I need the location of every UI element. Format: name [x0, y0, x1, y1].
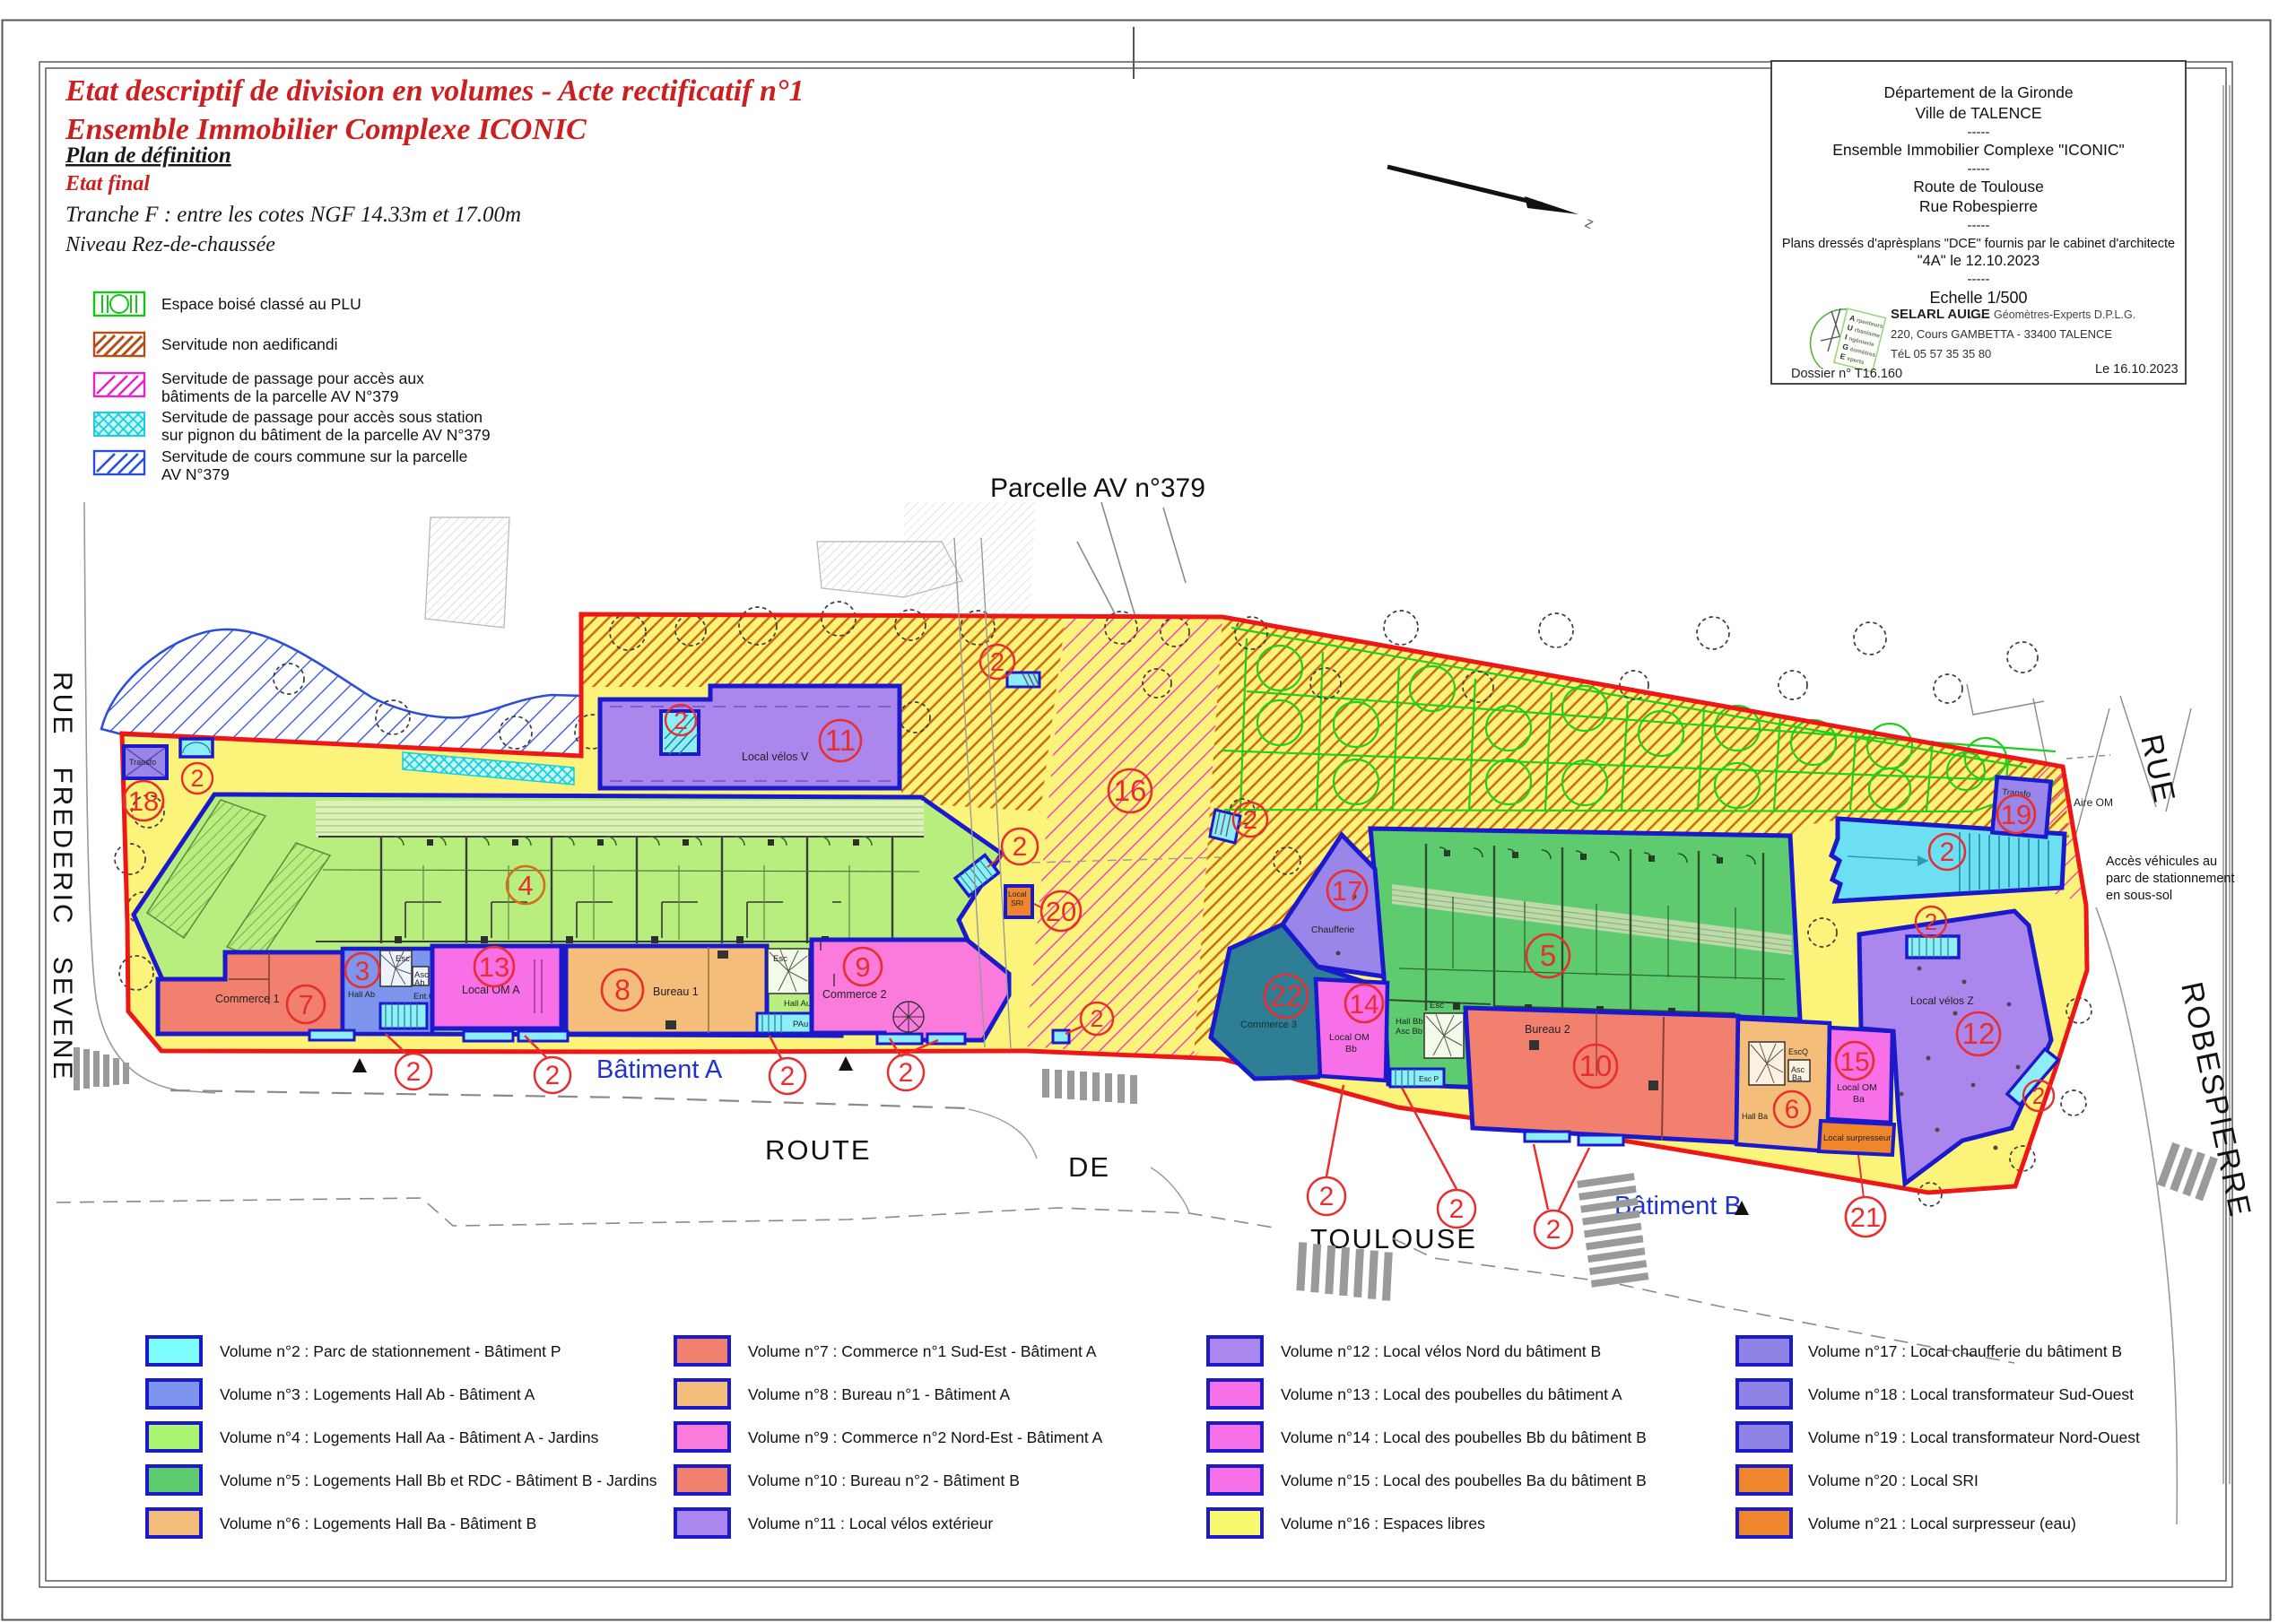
svg-text:10: 10: [1579, 1049, 1613, 1082]
svg-text:2: 2: [406, 1057, 422, 1087]
svg-text:Servitude de cours commune sur: Servitude de cours commune sur la parcel…: [161, 447, 467, 465]
svg-text:Volume n°8 : Bureau n°1 - Bâti: Volume n°8 : Bureau n°1 - Bâtiment A: [748, 1385, 1011, 1403]
svg-text:Bureau 2: Bureau 2: [1525, 1023, 1570, 1036]
svg-text:Accès véhicules au: Accès véhicules au: [2106, 855, 2217, 869]
svg-text:Rue Robespierre: Rue Robespierre: [1919, 197, 2038, 215]
svg-text:Volume n°21 : Local surpresseu: Volume n°21 : Local surpresseur (eau): [1808, 1515, 2076, 1532]
svg-text:2: 2: [1546, 1215, 1561, 1245]
svg-text:2: 2: [780, 1062, 796, 1091]
svg-text:2: 2: [1449, 1194, 1465, 1224]
svg-text:Volume n°6 : Logements Hall Ba: Volume n°6 : Logements Hall Ba - Bâtimen…: [220, 1515, 536, 1532]
svg-text:Ensemble Immobilier Complexe ": Ensemble Immobilier Complexe "ICONIC": [1832, 141, 2125, 159]
svg-text:2: 2: [1940, 838, 1955, 867]
svg-text:Volume n°15 : Local des poubel: Volume n°15 : Local des poubelles Ba du …: [1281, 1471, 1647, 1489]
svg-text:Esc P: Esc P: [1419, 1074, 1439, 1083]
svg-text:Esc: Esc: [773, 954, 787, 964]
svg-text:AV N°379: AV N°379: [161, 465, 230, 483]
svg-text:Esc: Esc: [1430, 1001, 1444, 1011]
svg-text:6: 6: [1785, 1095, 1800, 1124]
svg-text:PAu: PAu: [793, 1020, 808, 1029]
svg-text:2: 2: [899, 1058, 914, 1088]
svg-text:2: 2: [1090, 1005, 1103, 1032]
svg-text:Aire OM: Aire OM: [2074, 796, 2113, 809]
svg-text:Chaufferie: Chaufferie: [1311, 924, 1354, 935]
svg-text:-----: -----: [1968, 272, 1990, 287]
svg-text:Local vélos Z: Local vélos Z: [1910, 994, 1974, 1007]
svg-text:Volume n°16 : Espaces libres: Volume n°16 : Espaces libres: [1281, 1515, 1485, 1532]
svg-text:Volume n°4 : Logements Hall Aa: Volume n°4 : Logements Hall Aa - Bâtimen…: [220, 1428, 599, 1446]
svg-text:Volume n°10 : Bureau n°2 - Bât: Volume n°10 : Bureau n°2 - Bâtiment B: [748, 1471, 1020, 1489]
svg-text:Département de la Gironde: Département de la Gironde: [1883, 83, 2073, 101]
svg-text:-----: -----: [1968, 161, 1990, 177]
svg-text:7: 7: [298, 989, 313, 1020]
svg-text:Volume n°2 : Parc de stationne: Volume n°2 : Parc de stationnement - Bât…: [220, 1342, 561, 1360]
svg-text:ROUTE: ROUTE: [765, 1134, 872, 1166]
svg-text:Servitude de passage pour accè: Servitude de passage pour accès aux: [161, 369, 424, 387]
svg-text:Volume n°19 : Local transforma: Volume n°19 : Local transformateur Nord-…: [1808, 1428, 2140, 1446]
svg-text:Ba: Ba: [1792, 1073, 1802, 1082]
svg-text:Ah: Ah: [414, 978, 425, 988]
svg-text:Asc Bb: Asc Bb: [1396, 1027, 1422, 1037]
svg-text:Volume n°14 : Local des poubel: Volume n°14 : Local des poubelles Bb du …: [1281, 1428, 1647, 1446]
svg-text:Etat final: Etat final: [65, 172, 150, 195]
svg-text:Volume n°13 : Local des poubel: Volume n°13 : Local des poubelles du bât…: [1281, 1385, 1622, 1403]
svg-text:Local OM: Local OM: [1837, 1082, 1877, 1093]
svg-text:Local vélos V: Local vélos V: [742, 751, 809, 763]
svg-text:SELARL AUIGE Géomètres-Experts: SELARL AUIGE Géomètres-Experts D.P.L.G.: [1891, 307, 2135, 322]
svg-text:TéL 05 57 35 35 80: TéL 05 57 35 35 80: [1891, 347, 1991, 360]
svg-text:Hall Ab: Hall Ab: [348, 990, 375, 1000]
svg-text:Bureau 1: Bureau 1: [653, 985, 699, 998]
svg-text:4: 4: [517, 870, 533, 901]
svg-text:-----: -----: [1968, 125, 1990, 140]
svg-text:Echelle 1/500: Echelle 1/500: [1929, 289, 2027, 307]
svg-text:bâtiments de la parcelle AV N°: bâtiments de la parcelle AV N°379: [161, 387, 398, 405]
svg-text:Volume n°9 : Commerce n°2 Nord: Volume n°9 : Commerce n°2 Nord-Est - Bât…: [748, 1428, 1103, 1446]
svg-text:Volume n°20 : Local SRI: Volume n°20 : Local SRI: [1808, 1471, 1979, 1489]
svg-text:Volume n°12 : Local vélos Nord: Volume n°12 : Local vélos Nord du bâtime…: [1281, 1342, 1601, 1360]
svg-text:2: 2: [1243, 806, 1257, 835]
svg-text:17: 17: [1332, 875, 1362, 907]
svg-text:22: 22: [1270, 979, 1303, 1012]
svg-text:16: 16: [1114, 774, 1147, 807]
svg-text:-----: -----: [1968, 218, 1990, 233]
svg-text:Espace boisé classé au PLU: Espace boisé classé au PLU: [161, 295, 361, 313]
svg-text:Volume n°18 : Local transforma: Volume n°18 : Local transformateur Sud-O…: [1808, 1385, 2134, 1403]
svg-text:Hall Bb: Hall Bb: [1396, 1017, 1423, 1027]
svg-text:Dossier n° T16.160: Dossier n° T16.160: [1791, 367, 1902, 381]
svg-text:3: 3: [355, 957, 370, 986]
svg-text:2: 2: [990, 648, 1004, 677]
svg-text:9: 9: [855, 951, 870, 983]
svg-text:14: 14: [1349, 990, 1378, 1020]
svg-text:Servitude non aedificandi: Servitude non aedificandi: [161, 335, 338, 353]
svg-text:Etat descriptif de division en: Etat descriptif de division en volumes -…: [65, 74, 804, 108]
svg-text:Commerce 1: Commerce 1: [215, 993, 280, 1005]
svg-text:11: 11: [825, 724, 856, 757]
svg-text:Servitude de passage pour accè: Servitude de passage pour accès sous sta…: [161, 408, 483, 426]
svg-text:2: 2: [674, 707, 688, 734]
svg-text:Local OM: Local OM: [1329, 1032, 1370, 1043]
svg-text:Volume n°3 : Logements Hall Ab: Volume n°3 : Logements Hall Ab - Bâtimen…: [220, 1385, 535, 1403]
svg-text:19: 19: [2001, 799, 2031, 830]
svg-text:20: 20: [1046, 896, 1076, 927]
svg-text:RUE FREDERIC SEVENE: RUE FREDERIC SEVENE: [48, 672, 77, 1081]
svg-text:Transfo: Transfo: [129, 758, 156, 767]
svg-text:Bâtiment A: Bâtiment A: [596, 1055, 723, 1084]
svg-text:DE: DE: [1068, 1151, 1110, 1183]
svg-text:Commerce 3: Commerce 3: [1240, 1020, 1297, 1030]
svg-text:2: 2: [1013, 832, 1028, 862]
svg-text:Tranche F : entre les cotes NG: Tranche F : entre les cotes NGF 14.33m e…: [65, 203, 521, 227]
svg-text:220, Cours GAMBETTA - 33400 T: 220, Cours GAMBETTA - 33400 TALENCE: [1891, 327, 2112, 341]
svg-text:Plans dressés d'aprèsplans "DC: Plans dressés d'aprèsplans "DCE" fournis…: [1782, 237, 2175, 251]
svg-text:z: z: [1582, 213, 1596, 232]
svg-text:Volume n°11 : Local vélos exté: Volume n°11 : Local vélos extérieur: [748, 1515, 993, 1532]
svg-text:Hall Ba: Hall Ba: [1742, 1112, 1768, 1121]
svg-text:Ba: Ba: [1853, 1094, 1865, 1105]
svg-text:Volume n°7 : Commerce n°1 Sud-: Volume n°7 : Commerce n°1 Sud-Est - Bâti…: [748, 1342, 1097, 1360]
svg-text:Local surpresseur: Local surpresseur: [1823, 1133, 1892, 1143]
svg-text:2: 2: [1319, 1182, 1335, 1211]
svg-text:Local: Local: [1008, 890, 1026, 898]
svg-text:21: 21: [1850, 1202, 1881, 1233]
svg-text:Bb: Bb: [1345, 1044, 1357, 1055]
svg-text:Commerce 2: Commerce 2: [822, 988, 887, 1001]
svg-text:2: 2: [1925, 908, 1937, 935]
svg-text:en sous-sol: en sous-sol: [2106, 889, 2172, 903]
svg-text:SRI: SRI: [1011, 898, 1023, 907]
svg-text:Ensemble Immobilier Complexe I: Ensemble Immobilier Complexe ICONIC: [65, 113, 587, 146]
svg-text:13: 13: [479, 951, 509, 983]
svg-text:"4A" le 12.10.2023: "4A" le 12.10.2023: [1918, 253, 2040, 269]
svg-text:Plan de définition: Plan de définition: [65, 143, 231, 168]
svg-text:2: 2: [190, 765, 204, 792]
svg-text:2: 2: [2032, 1082, 2045, 1109]
svg-text:Parcelle AV n°379: Parcelle AV n°379: [990, 473, 1205, 503]
svg-text:Esc: Esc: [396, 954, 410, 964]
svg-text:Niveau Rez-de-chaussée: Niveau Rez-de-chaussée: [65, 233, 275, 256]
svg-text:EscQ: EscQ: [1788, 1047, 1808, 1056]
svg-text:5: 5: [1540, 939, 1556, 972]
svg-text:Volume n°17 : Local chaufferie: Volume n°17 : Local chaufferie du bâtime…: [1808, 1342, 2122, 1360]
svg-text:8: 8: [614, 974, 631, 1006]
svg-text:Hall Au: Hall Au: [784, 999, 811, 1009]
svg-text:18: 18: [128, 785, 159, 817]
svg-text:sur pignon du bâtiment de la p: sur pignon du bâtiment de la parcelle AV…: [161, 426, 491, 444]
svg-text:15: 15: [1839, 1047, 1869, 1077]
svg-text:Le 16.10.2023: Le 16.10.2023: [2095, 362, 2179, 377]
svg-text:RUE: RUE: [2134, 732, 2181, 807]
svg-text:Ville de TALENCE: Ville de TALENCE: [1915, 104, 2041, 122]
svg-text:Route de Toulouse: Route de Toulouse: [1913, 178, 2044, 195]
svg-text:parc de stationnement: parc de stationnement: [2106, 872, 2234, 886]
svg-text:Volume n°5 : Logements Hall Bb: Volume n°5 : Logements Hall Bb et RDC - …: [220, 1471, 657, 1489]
svg-text:2: 2: [545, 1061, 561, 1090]
svg-text:12: 12: [1962, 1017, 1996, 1050]
